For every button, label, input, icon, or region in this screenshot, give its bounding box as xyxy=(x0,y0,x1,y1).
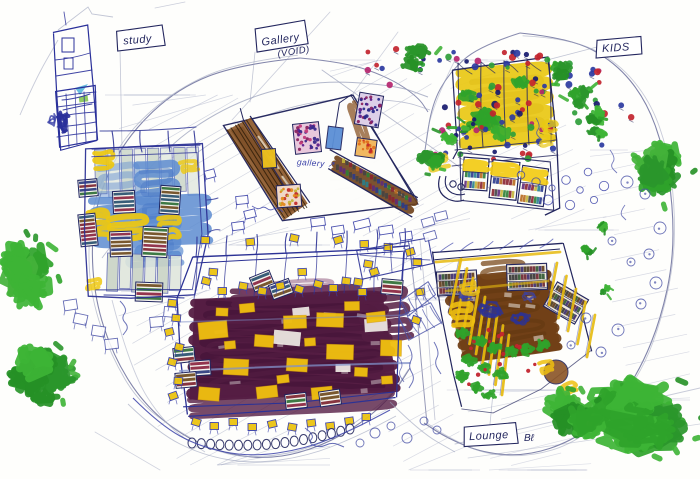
svg-text:KIDS: KIDS xyxy=(602,41,631,55)
svg-text:Lounge: Lounge xyxy=(469,429,509,443)
svg-text:Bℓ: Bℓ xyxy=(524,433,535,444)
